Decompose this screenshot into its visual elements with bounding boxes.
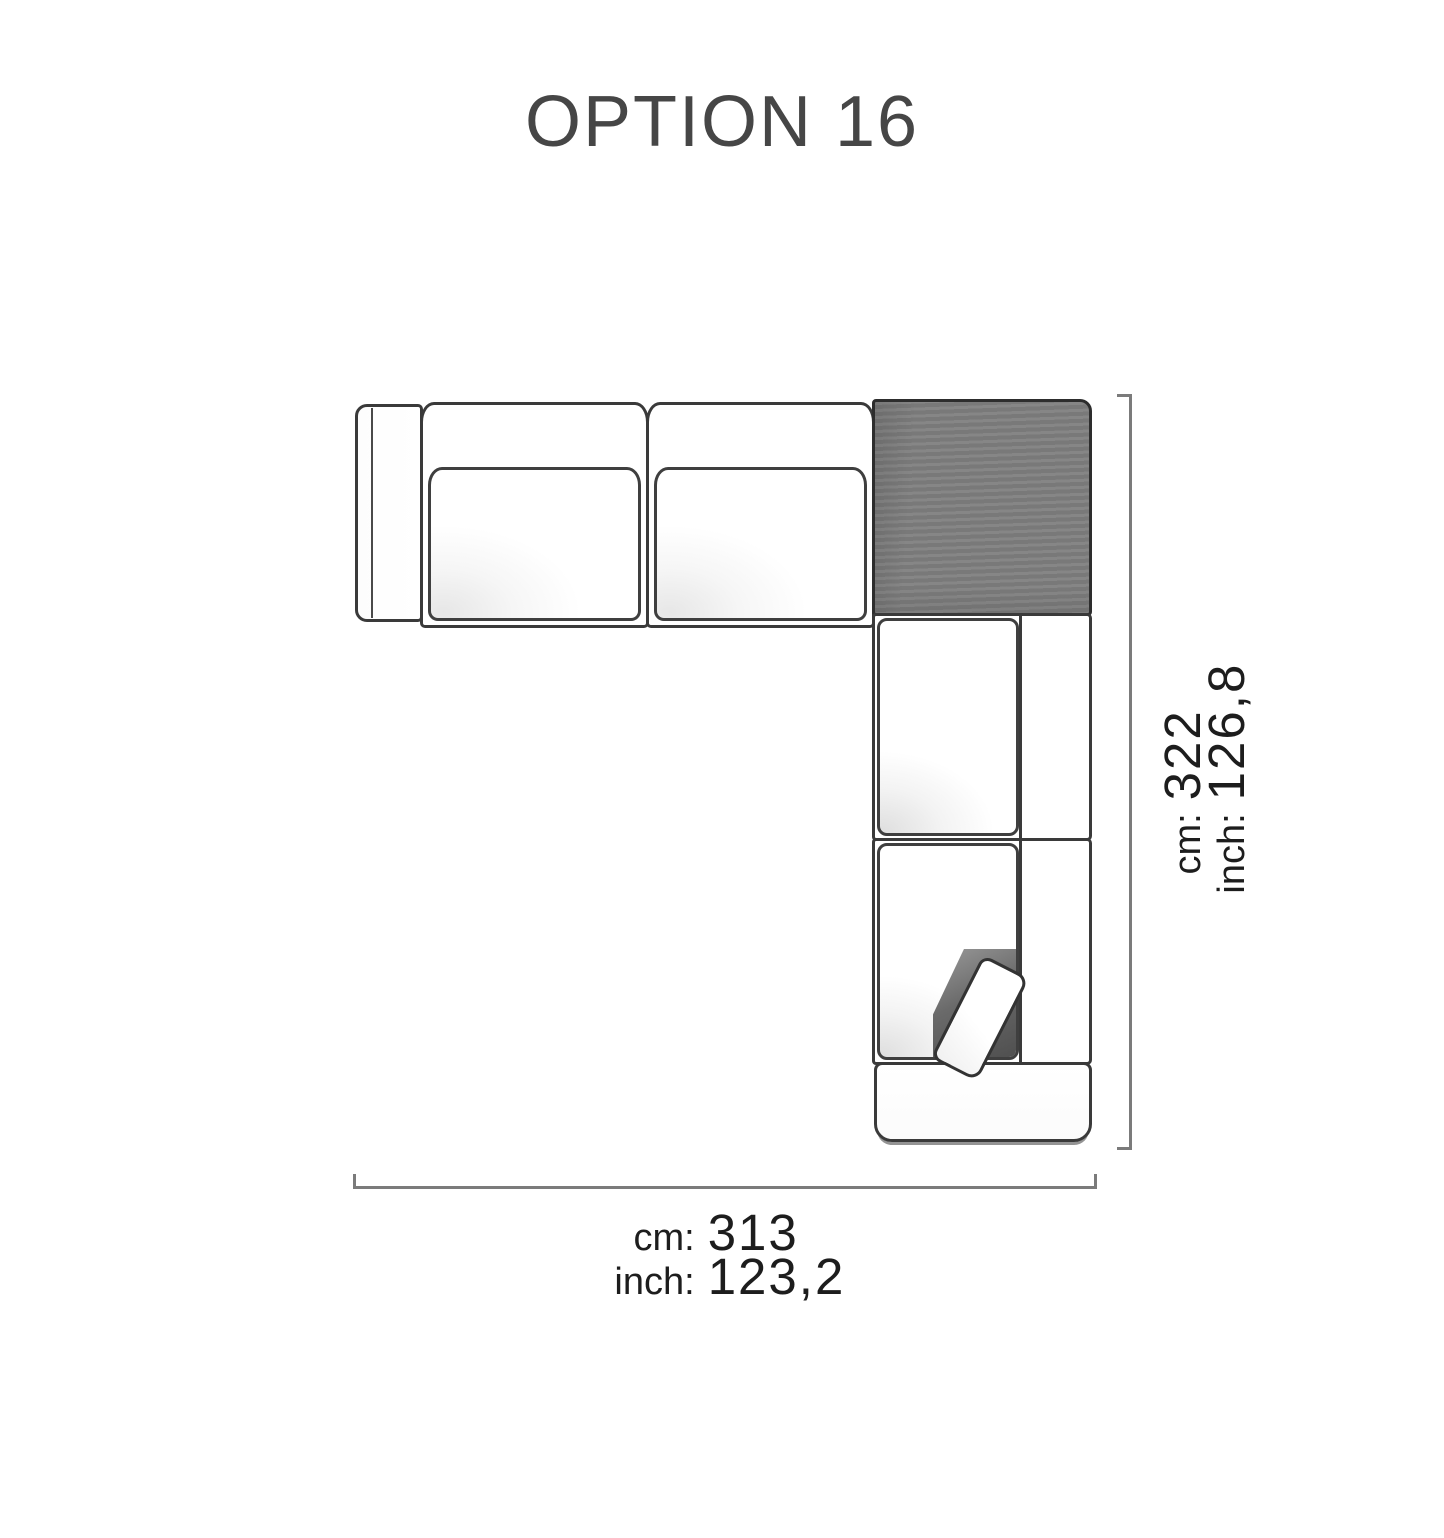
page-title: OPTION 16: [0, 86, 1444, 158]
height-inch-label: inch:: [1213, 813, 1251, 909]
width-dimension-text: cm: 313 inch: 123,2: [599, 1207, 846, 1295]
width-inch-label: inch:: [599, 1263, 695, 1301]
corner-module-highlighted: [872, 399, 1092, 616]
width-dimension-line: [353, 1174, 1097, 1189]
left-armrest: [355, 404, 423, 622]
width-inch-value: 123,2: [708, 1251, 846, 1302]
height-dimension-line: [1117, 394, 1132, 1150]
height-inch-value: 126,8: [1201, 663, 1252, 801]
height-cm-label: cm:: [1169, 813, 1207, 909]
bottom-armrest: [874, 1062, 1092, 1142]
height-dimension-text: cm: 322 inch: 126,8: [1157, 663, 1245, 910]
seat-cushion-2: [654, 467, 867, 621]
seat-cushion-1: [428, 467, 641, 621]
seat-module-3: [872, 613, 1092, 841]
width-cm-row: cm: 313: [599, 1207, 846, 1251]
backrest-strip-4: [1019, 841, 1089, 1062]
backrest-strip-3: [1019, 616, 1089, 838]
seat-cushion-3: [877, 618, 1019, 836]
sofa-option-page: OPTION 16 cm: 322: [0, 0, 1444, 1538]
height-cm-row: cm: 322: [1157, 663, 1201, 910]
seat-module-2: [646, 402, 875, 628]
width-cm-label: cm:: [599, 1219, 695, 1257]
seat-module-1: [420, 402, 649, 628]
